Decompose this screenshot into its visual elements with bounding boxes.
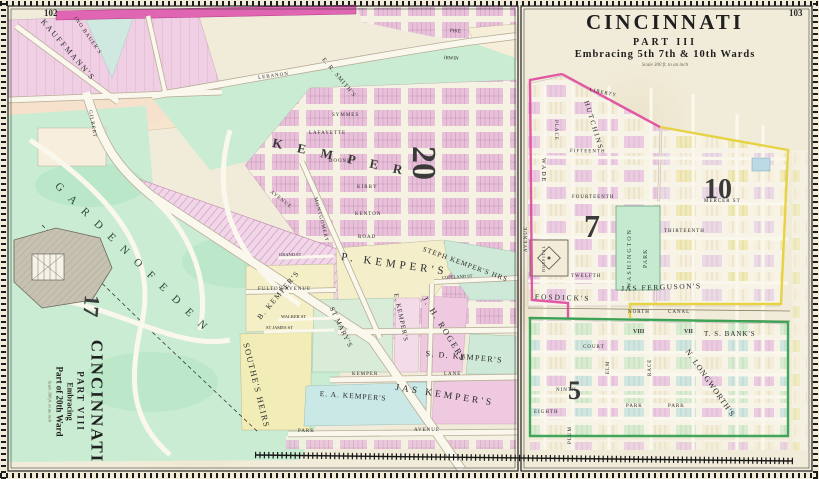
street-central-avenue: AVENUE <box>524 226 529 252</box>
street-north-canal-a: NORTH <box>628 310 650 315</box>
street-pike: PIKE <box>450 29 461 35</box>
street-mercer: MERCER ST <box>704 199 741 204</box>
garden-of-eden-label: G A R D E N O F E D E N <box>52 181 211 335</box>
street-liberty: LIBERTY <box>589 88 617 99</box>
street-twelfth: TWELFTH <box>571 274 601 279</box>
owner-n-longworths: N. LONGWORTH'S <box>683 348 736 419</box>
street-avenue-left: AVENUE <box>414 428 440 433</box>
park-small-2: PARK <box>668 404 685 409</box>
ward-7-numeral: 7 <box>584 210 600 242</box>
street-fifteenth: FIFTEENTH <box>570 149 606 155</box>
street-gilbert: GILBERT <box>87 110 97 138</box>
owner-wade: WADE <box>540 158 546 183</box>
street-kemper-lane-b: LANE <box>444 372 461 377</box>
pond-shape <box>752 158 770 171</box>
left-title-embracing: Embracing <box>66 317 75 479</box>
right-page-number: 103 <box>789 9 803 18</box>
washington-park-shape <box>616 206 660 290</box>
street-hutchins: HUTCHINS <box>582 100 604 151</box>
right-panel-title: CINCINNATI PART III Embracing 5th 7th & … <box>540 10 790 68</box>
owner-st-marys: ST MARY'S <box>328 306 354 349</box>
street-road: ROAD <box>358 235 376 240</box>
owner-ts-banks: T. S. BANK'S <box>704 331 756 338</box>
right-title-embracing: Embracing 5th 7th & 10th Wards <box>540 49 790 60</box>
street-elm: ELM <box>606 360 611 374</box>
border-ticks-top <box>0 1 819 6</box>
left-title-city: CINCINNATI <box>87 317 107 479</box>
owner-jas-kempers: JAS KEMPER'S <box>395 384 495 409</box>
street-fourteenth: FOURTEENTH <box>572 195 614 200</box>
railroad-line <box>255 455 793 461</box>
street-copeland: COPELAND ST <box>442 274 473 280</box>
owner-fosdicks: FOSDICK'S <box>535 293 591 302</box>
street-kirby: KIRBY <box>357 185 378 190</box>
block-vii: VII <box>684 329 693 335</box>
street-park-left: PARK <box>298 429 315 434</box>
owner-ea-kempers: E. A. KEMPER'S <box>319 390 386 402</box>
street-fulton-avenue: FULTON AVENUE <box>258 287 311 292</box>
owner-southes-heirs: SOUTHE'S HEIRS <box>242 342 271 429</box>
street-walker: WALKER ST <box>281 315 306 320</box>
street-symmes: SYMMES <box>332 113 359 118</box>
block-viii: VIII <box>633 329 644 335</box>
owner-sd-kempers: S. D. KEMPER'S <box>425 350 503 365</box>
hospital-label: HOSPITAL <box>542 245 546 272</box>
street-plum: PLUM <box>568 426 573 444</box>
left-title-ward-line: Part of 20th Ward <box>55 317 65 479</box>
street-gilbert-avenue: AVENUE <box>269 190 293 210</box>
street-lebanon: LEBANON <box>258 72 289 81</box>
street-kemper-lane-a: KEMPER <box>352 372 378 377</box>
panel-frames <box>8 6 812 471</box>
washington-park-label-2: PARK <box>643 249 649 268</box>
ward-17-numeral: 17 <box>79 294 103 318</box>
street-race: RACE <box>648 359 653 376</box>
washington-park-label-1: WASHINGTON <box>627 228 633 288</box>
left-title-part: PART VIII <box>76 317 86 479</box>
owner-er-smiths: E. R. SMITH'S <box>320 57 357 99</box>
owner-place: PLACE <box>553 120 558 141</box>
border-ticks-left <box>1 0 6 479</box>
street-grand: GRAND ST <box>279 253 301 258</box>
owner-e-kempers: E. KEMPER'S <box>392 293 409 343</box>
street-thirteenth: THIRTEENTH <box>664 229 705 234</box>
street-eighth: EIGHTH <box>534 410 559 415</box>
park-small-1: PARK <box>626 404 643 409</box>
ward-20-numeral: 20 <box>406 146 440 180</box>
kemper-area-label: K E M P E R <box>271 136 409 178</box>
left-title-scale: Scale 300 ft. to an inch <box>48 317 53 479</box>
street-court: COURT <box>583 345 605 350</box>
owner-jno-bauers: JNO BAUER'S <box>71 16 101 56</box>
street-kenton: KENTON <box>355 212 381 217</box>
right-title-scale: Scale 300 ft. to an inch <box>540 63 790 68</box>
street-lafayette: LAFAYETTE <box>309 131 346 136</box>
owner-kauffmanns: KAUFFMANN'S <box>39 18 97 83</box>
street-st-james: ST JAMES ST <box>266 326 293 331</box>
atlas-sheet: 102 103 CINCINNATI PART III Embracing 5t… <box>0 0 819 479</box>
street-montgomery: MONTGOMERY <box>312 197 329 243</box>
owner-jas-fergusons: JAS FERGUSON'S <box>621 282 702 292</box>
right-title-city: CINCINNATI <box>540 10 790 35</box>
street-north-canal-b: CANAL <box>668 310 690 315</box>
street-ninth: NINTH <box>556 388 577 393</box>
border-ticks-right <box>813 0 818 479</box>
border-ticks-bottom <box>0 473 819 478</box>
hospital-building-shape <box>530 240 568 276</box>
left-page-number: 102 <box>44 9 58 18</box>
right-title-part: PART III <box>540 37 790 48</box>
left-panel-title: CINCINNATI PART VIII Embracing Part of 2… <box>48 317 107 479</box>
street-irwin: IRWIN <box>444 56 459 62</box>
